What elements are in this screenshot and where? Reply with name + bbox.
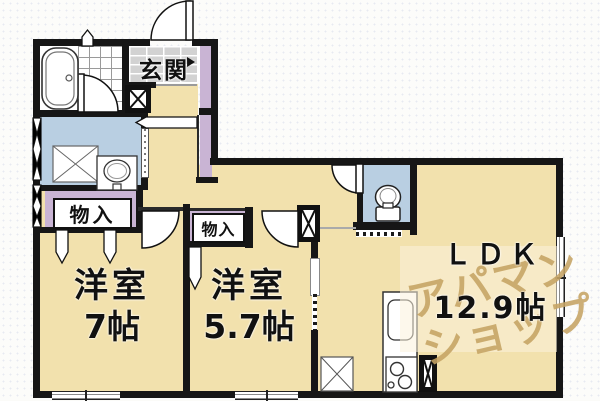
front-door-leaf [186, 1, 193, 40]
ldk-name: ＬＤＫ [433, 233, 553, 273]
bedroom-left-size: 7帖 [48, 300, 176, 348]
storage-right-label: 物入 [192, 213, 245, 243]
floor-plan: 玄関 物入 物入 洋室 7帖 洋室 5.7帖 アパマン ショップ ＬＤＫ 12.… [0, 0, 600, 400]
storage-right-text: 物入 [201, 216, 235, 240]
toilet-flush [383, 203, 393, 208]
bedroom-left-door-arc [142, 211, 179, 248]
toilet-door-leaf [356, 164, 363, 193]
entrance-label: 玄関 [131, 51, 197, 85]
closet-door-dart [136, 117, 197, 128]
toilet-tank [376, 207, 400, 221]
bathtub-drain [66, 75, 72, 81]
bedroom-middle-door-arc [262, 211, 298, 247]
bathroom-door-leaf [78, 74, 84, 112]
storage-left-label: 物入 [53, 198, 132, 229]
bedroom-middle-size: 5.7帖 [188, 300, 310, 348]
front-door-arc [151, 1, 190, 40]
ldk-size: 12.9帖 [423, 283, 558, 327]
bathroom-vent-window [82, 30, 93, 46]
storage-left-text: 物入 [70, 199, 116, 228]
washbasin-tap [113, 184, 121, 190]
bathroom-door-arc [81, 75, 118, 112]
